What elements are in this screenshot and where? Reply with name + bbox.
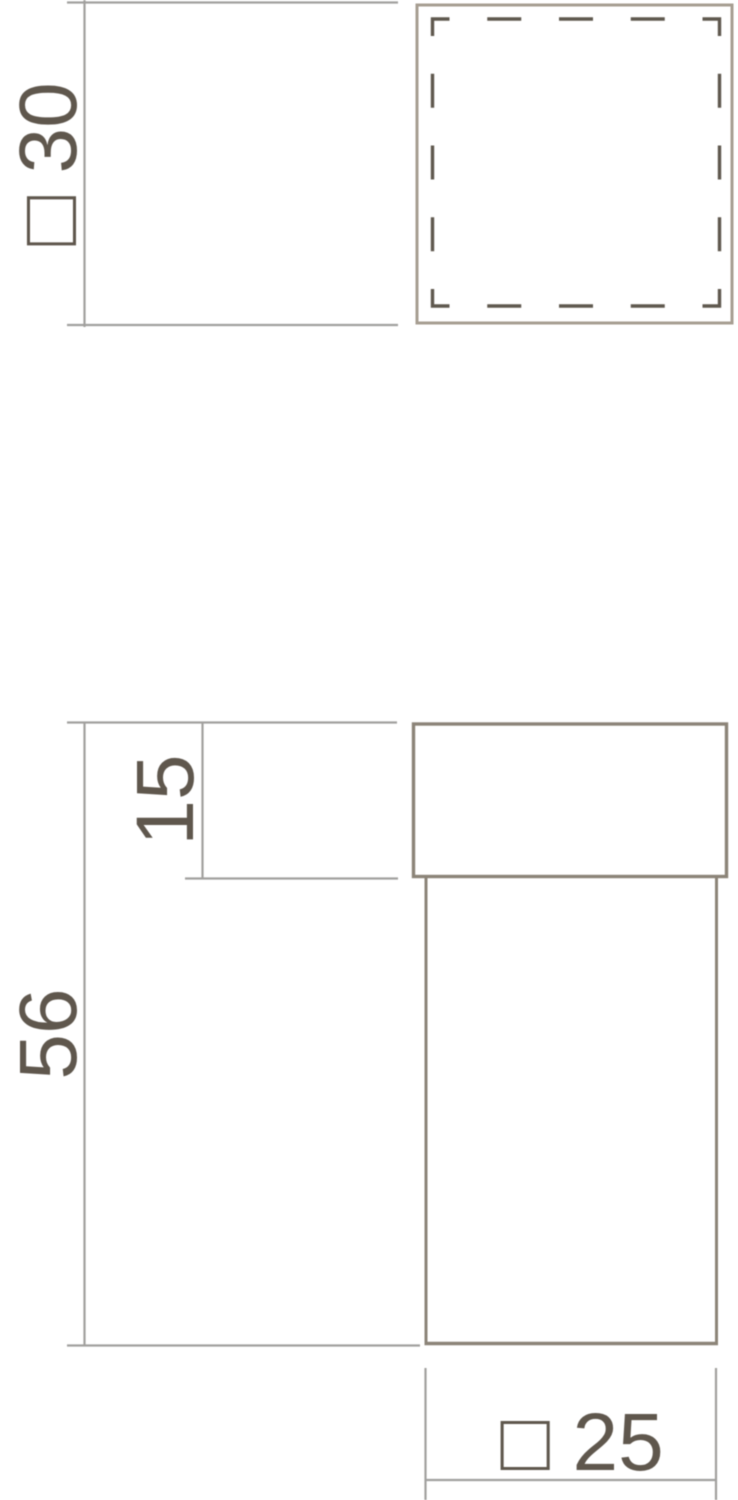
technical-drawing: □ 30 15 56 □ 25 [0, 0, 738, 1500]
drawing-canvas: □ 30 15 56 □ 25 [0, 0, 738, 1500]
top-view-size-label: □ 30 [3, 82, 94, 246]
front-view: 15 56 □ 25 [3, 723, 727, 1500]
base-size-label: □ 25 [500, 1397, 664, 1488]
front-view-cap [414, 724, 727, 877]
cap-height-label: 15 [120, 754, 211, 845]
top-view: □ 30 [3, 0, 732, 327]
total-height-label: 56 [3, 988, 94, 1079]
top-view-hidden-square [433, 19, 720, 306]
top-view-outline-square [417, 5, 732, 323]
